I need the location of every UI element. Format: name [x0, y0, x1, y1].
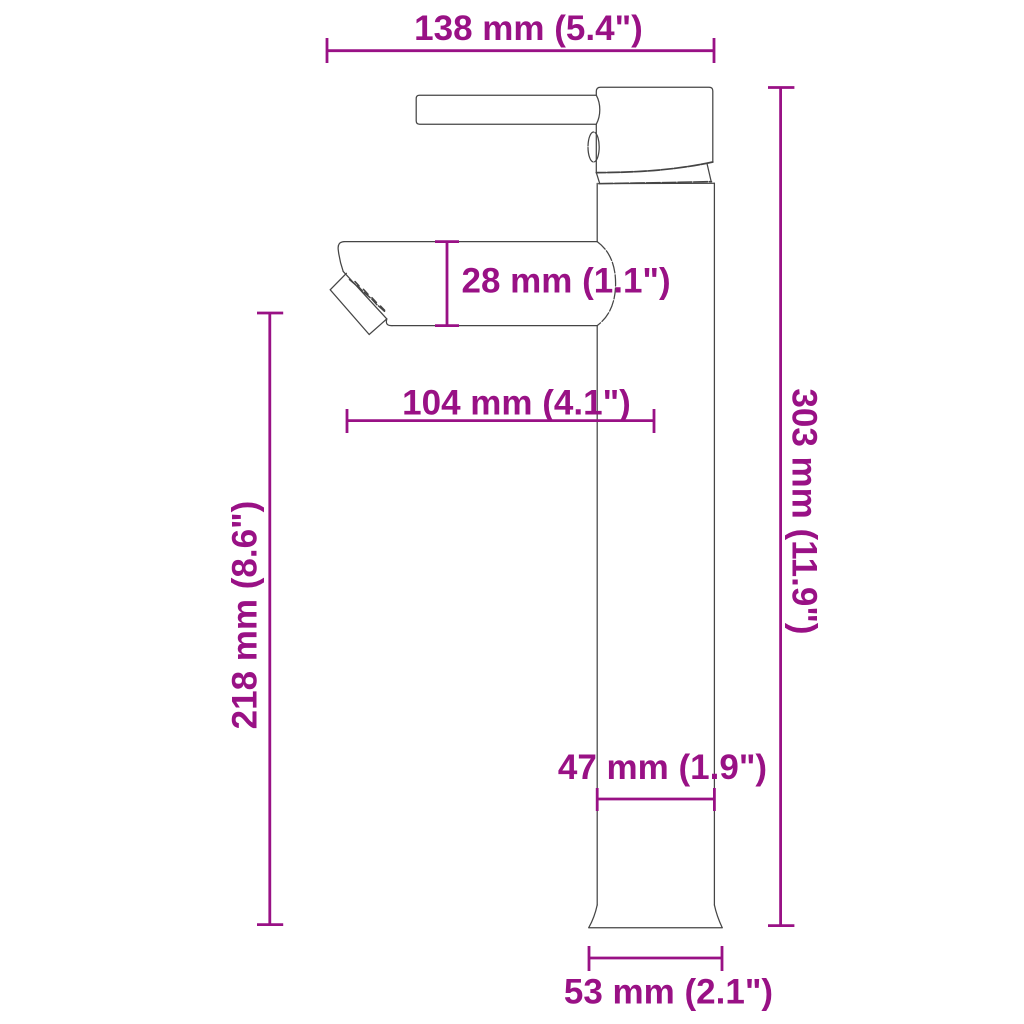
svg-text:104 mm (4.1"): 104 mm (4.1")	[402, 384, 631, 423]
svg-text:303 mm (11.9"): 303 mm (11.9")	[785, 388, 824, 634]
svg-text:138 mm (5.4"): 138 mm (5.4")	[414, 9, 643, 48]
svg-text:47 mm (1.9"): 47 mm (1.9")	[558, 748, 767, 787]
svg-text:28 mm (1.1"): 28 mm (1.1")	[462, 261, 671, 300]
svg-text:53 mm (2.1"): 53 mm (2.1")	[564, 972, 773, 1011]
svg-text:218 mm (8.6"): 218 mm (8.6")	[226, 501, 265, 730]
